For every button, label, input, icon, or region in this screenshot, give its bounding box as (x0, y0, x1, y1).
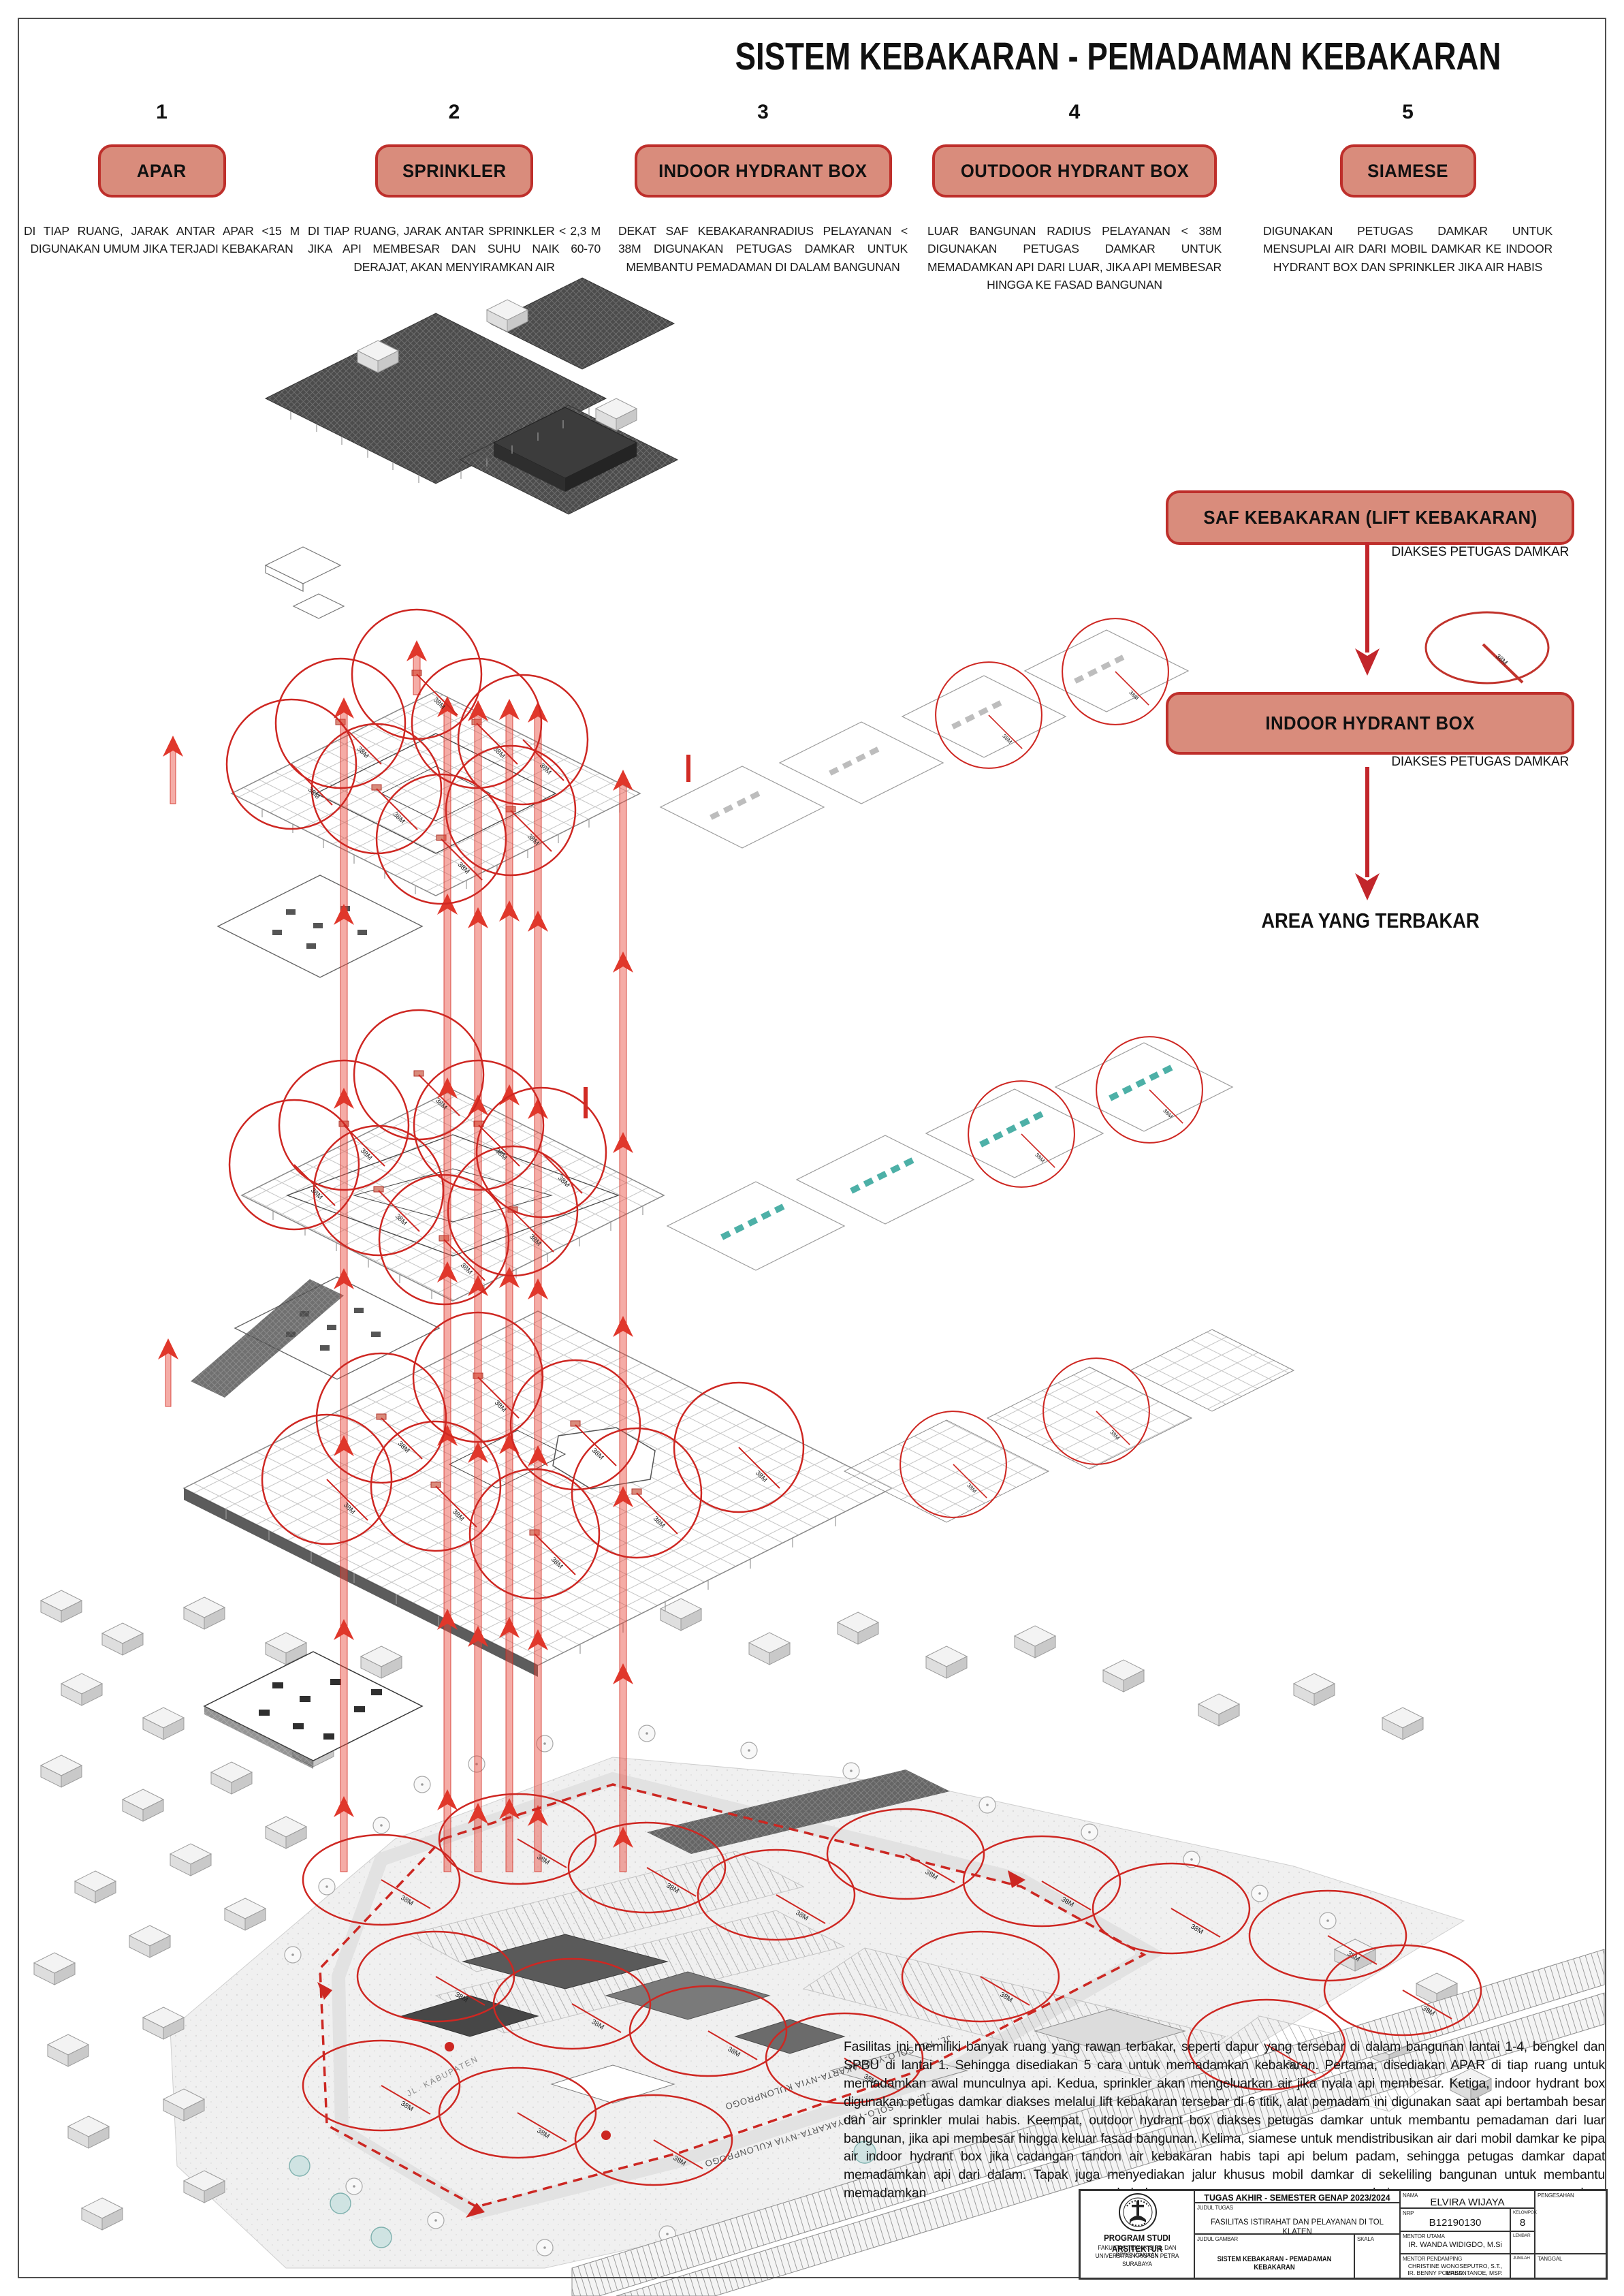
kelompok-label: KELOMPOK (1513, 2210, 1537, 2215)
method-label: SIAMESE (1367, 161, 1448, 182)
flow-box-label: INDOOR HYDRANT BOX (1265, 712, 1474, 734)
method-number: 1 (156, 102, 168, 123)
method-label: INDOOR HYDRANT BOX (658, 161, 867, 182)
level-3-wing (667, 1043, 1232, 1270)
poster-sheet: { "page": { "title": "SISTEM KEBAKARAN -… (0, 0, 1624, 2296)
jumlah-label: JUMLAH (1513, 2256, 1530, 2261)
judul-tugas-value: FASILITAS ISTIRAHAT DAN PELAYANAN DI TOL… (1200, 2217, 1395, 2236)
nrp-cell: NRP B12190130 (1400, 2208, 1510, 2231)
lembar-cell: LEMBAR (1510, 2231, 1535, 2254)
skala-label: SKALA (1357, 2236, 1374, 2242)
method-desc: LUAR BANGUNAN RADIUS PELAYANAN < 38M DIG… (927, 222, 1222, 294)
radius-label: 38M (1494, 652, 1509, 667)
method-sprinkler: 2 SPRINKLER DI TIAP RUANG, JARAK ANTAR S… (308, 102, 601, 276)
method-indoor-hydrant-box: 3 INDOOR HYDRANT BOX DEKAT SAF KEBAKARAN… (618, 102, 908, 276)
city-name: SURABAYA (1085, 2261, 1190, 2268)
university-name: UNIVERSITAS KRISTEN PETRA (1085, 2252, 1190, 2260)
petra-university-logo-icon (1109, 2192, 1166, 2232)
method-label: SPRINKLER (402, 161, 506, 182)
mentor-pendamping-label: MENTOR PENDAMPING (1403, 2256, 1462, 2262)
method-desc: DI TIAP RUANG, JARAK ANTAR SPRINKLER < 2… (308, 222, 601, 276)
method-number: 3 (757, 102, 769, 123)
method-pill-siamese: SIAMESE (1340, 144, 1476, 198)
institution-cell: PROGRAM STUDI ARSITEKTUR FAKULTAS TEKNIK… (1080, 2190, 1194, 2278)
nama-value: ELVIRA WIJAYA (1401, 2197, 1534, 2208)
method-desc: DIGUNAKAN PETUGAS DAMKAR UNTUK MENSUPLAI… (1263, 222, 1553, 276)
mentor-pendamping-cell: MENTOR PENDAMPING CHRISTINE WONOSEPUTRO,… (1400, 2254, 1510, 2278)
jumlah-cell: JUMLAH (1510, 2254, 1535, 2278)
method-pill-sprinkler: SPRINKLER (375, 144, 533, 198)
method-siamese: 5 SIAMESE DIGUNAKAN PETUGAS DAMKAR UNTUK… (1263, 102, 1553, 276)
page-title: SISTEM KEBAKARAN - PEMADAMAN KEBAKARAN (735, 34, 1496, 79)
judul-gambar-value: SISTEM KEBAKARAN - PEMADAMAN KEBAKARAN (1207, 2255, 1341, 2271)
judul-tugas-label: JUDUL TUGAS (1197, 2205, 1233, 2211)
method-pill-apar: APAR (98, 144, 226, 198)
axonometric-diagram: 38M 38M (0, 0, 1624, 2296)
method-outdoor-hydrant-box: 4 OUTDOOR HYDRANT BOX LUAR BANGUNAN RADI… (927, 102, 1222, 294)
analysis-paragraph: Fasilitas ini memiliki banyak ruang yang… (844, 2038, 1605, 2203)
method-label: APAR (137, 161, 187, 182)
tugas-header-cell: TUGAS AKHIR - SEMESTER GENAP 2023/2024 (1194, 2190, 1400, 2203)
flow-box-indoor-hydrant: INDOOR HYDRANT BOX (1166, 692, 1574, 755)
title-block: PROGRAM STUDI ARSITEKTUR FAKULTAS TEKNIK… (1079, 2189, 1608, 2280)
judul-gambar-label: JUDUL GAMBAR (1197, 2236, 1238, 2242)
nama-cell: NAMA ELVIRA WIJAYA (1400, 2190, 1535, 2208)
skala-cell: SKALA (1354, 2234, 1400, 2278)
mentor-pendamping-2: IR. BENNY POERBANTANOE, MSP. (1401, 2269, 1510, 2276)
method-number: 5 (1402, 102, 1414, 123)
nrp-label: NRP (1403, 2210, 1414, 2216)
method-desc: DI TIAP RUANG, JARAK ANTAR APAR <15 M DI… (24, 222, 300, 258)
lembar-label: LEMBAR (1513, 2233, 1531, 2238)
down-arrow-icon (1354, 767, 1381, 903)
flow-box-saf-kebakaran: SAF KEBAKARAN (LIFT KEBAKARAN) (1166, 490, 1574, 545)
area-terbakar-label: AREA YANG TERBAKAR (1255, 909, 1486, 933)
roof-slabs (266, 547, 344, 618)
pengesahan-cell: PENGESAHAN (1535, 2190, 1606, 2254)
upper-mezzanine-plate (218, 875, 422, 977)
down-arrow-icon (1354, 542, 1381, 678)
kelompok-cell: KELOMPOK 8 (1510, 2208, 1535, 2231)
kelompok-value: 8 (1511, 2217, 1534, 2229)
method-number: 4 (1069, 102, 1081, 123)
mentor-utama-cell: MENTOR UTAMA IR. WANDA WIDIGDO, M.Si (1400, 2231, 1510, 2254)
judul-tugas-cell: JUDUL TUGAS FASILITAS ISTIRAHAT DAN PELA… (1194, 2203, 1400, 2234)
pengesahan-label: PENGESAHAN (1538, 2192, 1574, 2199)
method-apar: 1 APAR DI TIAP RUANG, JARAK ANTAR APAR <… (24, 102, 300, 258)
method-pill-outdoor-hydrant: OUTDOOR HYDRANT BOX (932, 144, 1217, 198)
mentor-utama-label: MENTOR UTAMA (1403, 2233, 1445, 2239)
nrp-value: B12190130 (1401, 2217, 1510, 2229)
method-pill-indoor-hydrant: INDOOR HYDRANT BOX (635, 144, 892, 198)
tanggal-cell: TANGGAL (1535, 2254, 1606, 2278)
level-4-wing (660, 630, 1188, 848)
radius-legend-ellipse: 38M (1420, 609, 1554, 691)
flow-box-label: SAF KEBAKARAN (LIFT KEBAKARAN) (1203, 507, 1537, 529)
tanggal-label: TANGGAL (1538, 2256, 1562, 2262)
tugas-header: TUGAS AKHIR - SEMESTER GENAP 2023/2024 (1200, 2192, 1395, 2203)
level-4-plate (232, 630, 1188, 896)
judul-gambar-cell: JUDUL GAMBAR SISTEM KEBAKARAN - PEMADAMA… (1194, 2234, 1354, 2278)
method-label: OUTDOOR HYDRANT BOX (960, 161, 1188, 182)
method-number: 2 (449, 102, 460, 123)
mentor-utama-value: IR. WANDA WIDIGDO, M.Si (1401, 2241, 1510, 2249)
method-desc: DEKAT SAF KEBAKARANRADIUS PELAYANAN < 38… (618, 222, 908, 276)
roof-plan (266, 278, 678, 514)
